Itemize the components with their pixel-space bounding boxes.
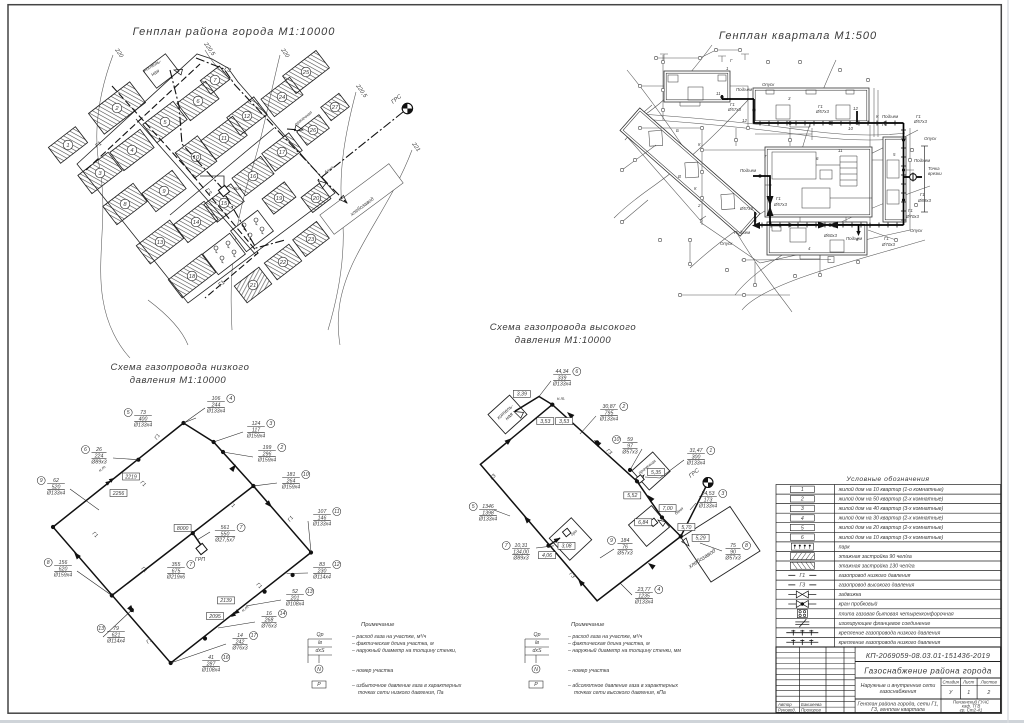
svg-text:795: 795 xyxy=(605,410,614,416)
svg-text:73: 73 xyxy=(140,410,146,416)
svg-text:К: К xyxy=(694,186,697,191)
svg-text:Ø57х3: Ø57х3 xyxy=(815,109,829,114)
svg-text:Ø108х4: Ø108х4 xyxy=(285,602,304,608)
svg-text:Стадия: Стадия xyxy=(942,680,959,685)
svg-text:20: 20 xyxy=(312,196,320,202)
svg-text:Г1: Г1 xyxy=(882,122,887,127)
svg-text:КП-2069059-08.03.01-151436-201: КП-2069059-08.03.01-151436-2019 xyxy=(866,651,990,660)
svg-text:Автор: Автор xyxy=(777,702,792,707)
svg-text:1: 1 xyxy=(967,690,970,696)
svg-text:Г1: Г1 xyxy=(884,236,889,241)
svg-text:Ø219х6: Ø219х6 xyxy=(166,575,185,581)
svg-text:17: 17 xyxy=(279,150,286,156)
svg-text:13: 13 xyxy=(157,240,164,246)
svg-text:14: 14 xyxy=(193,220,199,226)
svg-text:Ø57х3: Ø57х3 xyxy=(739,206,753,211)
svg-text:7,00: 7,00 xyxy=(663,506,673,512)
svg-text:Ø60х3: Ø60х3 xyxy=(823,233,837,238)
svg-text:н.т.: н.т. xyxy=(557,396,565,401)
svg-text:2139: 2139 xyxy=(219,598,232,604)
svg-text:К: К xyxy=(698,142,701,147)
svg-text:Ø57х3: Ø57х3 xyxy=(616,551,632,557)
svg-text:– расход газа на участке, м³/: – расход газа на участке, м³/ч xyxy=(567,634,642,640)
svg-text:201: 201 xyxy=(290,595,300,601)
svg-text:62: 62 xyxy=(53,478,59,484)
svg-text:4,06: 4,06 xyxy=(542,553,552,559)
svg-text:561: 561 xyxy=(221,525,230,531)
svg-text:плита газовая бытовая четырехк: плита газовая бытовая четырехконфорочная xyxy=(839,611,954,617)
svg-text:14: 14 xyxy=(237,633,243,639)
svg-text:11: 11 xyxy=(221,136,227,142)
svg-text:Г3, генплан квартала: Г3, генплан квартала xyxy=(871,707,925,713)
svg-text:23,77: 23,77 xyxy=(637,587,652,593)
svg-text:2: 2 xyxy=(986,690,990,696)
svg-text:Г1: Г1 xyxy=(799,573,805,579)
svg-text:621: 621 xyxy=(112,632,121,638)
svg-text:520: 520 xyxy=(52,484,61,490)
svg-text:90: 90 xyxy=(730,549,736,555)
svg-text:355: 355 xyxy=(172,562,181,568)
svg-text:8: 8 xyxy=(47,560,50,566)
svg-text:Ø57х3: Ø57х3 xyxy=(727,107,741,112)
svg-text:Ø70х3: Ø70х3 xyxy=(881,242,895,247)
svg-text:ГРП: ГРП xyxy=(195,557,205,563)
svg-text:Генплан района города М1:10: Генплан района города М1:10000 xyxy=(133,26,336,38)
svg-text:давления М1:10000: давления М1:10000 xyxy=(130,375,227,386)
svg-text:– номер участка: – номер участка xyxy=(567,668,609,674)
svg-text:400: 400 xyxy=(139,416,148,422)
svg-text:В: В xyxy=(678,174,681,179)
svg-text:3,39: 3,39 xyxy=(517,392,527,398)
svg-text:Опуск: Опуск xyxy=(910,228,923,233)
svg-text:– избыточное давление газа в: – избыточное давление газа в характерных xyxy=(351,683,462,689)
svg-text:2: 2 xyxy=(621,404,625,410)
svg-text:6: 6 xyxy=(84,447,87,453)
svg-text:Ø76х3: Ø76х3 xyxy=(231,646,247,652)
svg-text:10: 10 xyxy=(848,126,853,131)
svg-text:К: К xyxy=(876,114,879,119)
svg-text:4: 4 xyxy=(130,148,133,154)
svg-text:Ø133х4: Ø133х4 xyxy=(552,382,571,388)
svg-text:5,52: 5,52 xyxy=(627,493,637,499)
svg-text:Р: Р xyxy=(317,682,321,688)
svg-text:– расход газа на участке, м³/: – расход газа на участке, м³/ч xyxy=(351,634,426,640)
svg-text:12: 12 xyxy=(334,562,340,568)
svg-text:181: 181 xyxy=(287,472,296,478)
svg-text:5,35: 5,35 xyxy=(651,470,661,476)
svg-text:9: 9 xyxy=(610,538,613,544)
svg-text:19: 19 xyxy=(276,196,283,202)
svg-text:газопровод низкого давления: газопровод низкого давления xyxy=(839,573,911,579)
svg-text:12: 12 xyxy=(244,114,251,120)
svg-text:– наружный диаметр на толщину: – наружный диаметр на толщину стенки, мм xyxy=(567,647,681,654)
svg-text:жилой дом на 50 квартир (2-х к: жилой дом на 50 квартир (2-х комнатные) xyxy=(838,496,944,503)
svg-text:83: 83 xyxy=(319,562,325,568)
svg-text:59: 59 xyxy=(627,437,633,443)
svg-text:12: 12 xyxy=(742,118,747,123)
svg-text:Ø159х4: Ø159х4 xyxy=(281,485,300,491)
svg-text:12: 12 xyxy=(853,106,858,111)
svg-text:14: 14 xyxy=(280,611,286,617)
svg-text:9: 9 xyxy=(40,478,43,484)
svg-text:244: 244 xyxy=(211,402,221,408)
svg-text:Г1: Г1 xyxy=(920,192,925,197)
svg-text:врезки: врезки xyxy=(928,171,942,176)
svg-text:Газоснабжение района города: Газоснабжение района города xyxy=(864,667,992,676)
svg-text:Ø70х3: Ø70х3 xyxy=(905,214,919,219)
svg-text:550: 550 xyxy=(221,531,230,537)
svg-text:Ø133х4: Ø133х4 xyxy=(599,417,618,423)
svg-text:парк: парк xyxy=(839,544,851,550)
svg-text:24,53: 24,53 xyxy=(701,491,715,497)
svg-text:Подъем: Подъем xyxy=(882,114,898,119)
svg-text:давления М1:10000: давления М1:10000 xyxy=(515,335,612,346)
svg-text:2: 2 xyxy=(697,203,701,208)
svg-text:230: 230 xyxy=(317,568,327,574)
svg-text:16: 16 xyxy=(250,174,257,180)
svg-text:Р: Р xyxy=(534,682,538,688)
svg-text:крепление газопровода низкого: крепление газопровода низкого давления xyxy=(839,640,941,646)
svg-text:2: 2 xyxy=(800,497,804,503)
svg-text:Ø133х4: Ø133х4 xyxy=(478,517,497,523)
svg-text:Примечание: Примечание xyxy=(361,622,395,628)
svg-text:lв: lв xyxy=(535,640,539,646)
svg-text:Qр: Qр xyxy=(317,632,324,638)
svg-text:5: 5 xyxy=(801,525,804,531)
svg-text:Листов: Листов xyxy=(980,680,998,685)
svg-text:2219: 2219 xyxy=(124,474,137,480)
svg-text:23: 23 xyxy=(307,237,315,243)
svg-text:Ø133х4: Ø133х4 xyxy=(312,522,331,528)
svg-text:24: 24 xyxy=(278,95,285,101)
svg-text:52: 52 xyxy=(292,589,298,595)
svg-text:газоснабжения: газоснабжения xyxy=(880,689,917,695)
svg-text:1: 1 xyxy=(66,143,69,149)
svg-text:264: 264 xyxy=(286,478,296,484)
svg-text:жилой дом на 20 квартир (2-х к: жилой дом на 20 квартир (2-х комнатные) xyxy=(838,524,944,531)
svg-text:Схема газопровода высокого: Схема газопровода высокого xyxy=(490,322,637,333)
svg-text:3: 3 xyxy=(721,491,724,497)
svg-text:16: 16 xyxy=(266,611,272,617)
svg-text:жилой дом на 30 квартир (2-х к: жилой дом на 30 квартир (2-х комнатные) xyxy=(838,515,944,522)
svg-text:Ø27,5х7: Ø27,5х7 xyxy=(214,538,236,544)
svg-text:Г1: Г1 xyxy=(776,196,781,201)
svg-text:жилой дом на 10 квартир (1-о к: жилой дом на 10 квартир (1-о комнатные) xyxy=(838,486,944,493)
svg-text:Схема газопровода низкого: Схема газопровода низкого xyxy=(111,362,250,373)
svg-text:Подъем: Подъем xyxy=(914,158,930,163)
svg-text:4: 4 xyxy=(229,396,232,402)
svg-text:газопровод высокого давления: газопровод высокого давления xyxy=(839,583,915,589)
svg-text:106: 106 xyxy=(212,396,221,402)
svg-text:18: 18 xyxy=(189,274,196,280)
svg-text:2: 2 xyxy=(279,445,283,451)
svg-text:Ø57х3: Ø57х3 xyxy=(913,119,927,124)
svg-text:задвижка: задвижка xyxy=(838,592,862,598)
svg-text:Ø114х4: Ø114х4 xyxy=(106,639,125,645)
svg-text:75: 75 xyxy=(730,543,736,549)
svg-text:6: 6 xyxy=(801,535,804,541)
svg-text:6: 6 xyxy=(575,369,578,375)
svg-text:Ø89х3: Ø89х3 xyxy=(917,198,931,203)
svg-text:134,00: 134,00 xyxy=(513,549,529,555)
svg-text:1: 1 xyxy=(801,487,804,493)
svg-text:Лист: Лист xyxy=(962,680,975,685)
svg-text:жилой дом на 10 квартир (3-х к: жилой дом на 10 квартир (3-х комнатные) xyxy=(838,534,944,541)
svg-text:16: 16 xyxy=(223,655,229,661)
svg-text:изолирующее фланцевое соединен: изолирующее фланцевое соединение xyxy=(839,621,931,627)
svg-text:26: 26 xyxy=(309,128,317,134)
svg-text:этажная застройка 130 чел/га: этажная застройка 130 чел/га xyxy=(839,562,915,569)
svg-text:11: 11 xyxy=(334,509,339,515)
svg-text:Бакшеева: Бакшеева xyxy=(801,702,822,707)
svg-text:27: 27 xyxy=(331,105,339,111)
svg-text:Ø133х4: Ø133х4 xyxy=(686,461,705,467)
svg-text:3,08: 3,08 xyxy=(561,544,571,550)
svg-text:8: 8 xyxy=(745,543,748,549)
svg-text:гр. Ст2-41: гр. Ст2-41 xyxy=(960,708,983,713)
svg-text:3: 3 xyxy=(801,506,804,512)
svg-text:Опуск: Опуск xyxy=(762,82,775,87)
svg-text:– фактическая длина участка,: – фактическая длина участка, м xyxy=(567,641,650,647)
svg-text:146: 146 xyxy=(318,515,327,521)
svg-text:точках сети низкого давления,: точках сети низкого давления, Па xyxy=(358,690,444,696)
svg-text:Подъем: Подъем xyxy=(740,168,756,173)
svg-text:22: 22 xyxy=(279,260,287,266)
svg-text:Ø114х4: Ø114х4 xyxy=(312,575,331,581)
svg-text:6,84: 6,84 xyxy=(638,520,648,526)
svg-text:dхS: dхS xyxy=(316,648,325,654)
svg-text:Подъем: Подъем xyxy=(736,87,752,92)
svg-text:Ø89х3: Ø89х3 xyxy=(512,556,528,562)
svg-text:– номер участка: – номер участка xyxy=(351,668,393,674)
svg-text:Подъем: Подъем xyxy=(734,230,750,235)
svg-text:Ø57х3: Ø57х3 xyxy=(773,202,787,207)
svg-text:300: 300 xyxy=(692,454,701,460)
svg-text:10,31: 10,31 xyxy=(515,543,528,549)
svg-text:Ø133х4: Ø133х4 xyxy=(206,409,225,415)
svg-text:242: 242 xyxy=(235,639,245,645)
svg-text:173: 173 xyxy=(704,497,713,503)
svg-text:44,34: 44,34 xyxy=(556,369,569,375)
svg-text:4: 4 xyxy=(657,587,660,593)
svg-text:10: 10 xyxy=(614,437,620,443)
svg-text:620: 620 xyxy=(59,566,68,572)
svg-text:2095: 2095 xyxy=(208,614,221,620)
svg-text:крепление газопровода низкого: крепление газопровода низкого давления xyxy=(839,630,941,636)
svg-text:Подъем: Подъем xyxy=(846,236,862,241)
svg-text:Ø133х4: Ø133х4 xyxy=(133,423,152,429)
svg-text:156: 156 xyxy=(59,560,68,566)
svg-text:30,87: 30,87 xyxy=(603,404,617,410)
svg-text:76: 76 xyxy=(622,544,628,550)
svg-text:3,53: 3,53 xyxy=(540,419,550,425)
svg-text:N: N xyxy=(317,667,321,673)
svg-text:41: 41 xyxy=(208,655,214,661)
svg-text:31,47: 31,47 xyxy=(690,448,704,454)
svg-text:Руковод.: Руковод. xyxy=(778,708,796,713)
svg-text:– наружный диаметр на толщину: – наружный диаметр на толщину стенки, xyxy=(351,647,456,654)
svg-text:Qр: Qр xyxy=(534,632,541,638)
svg-text:10: 10 xyxy=(303,472,309,478)
svg-text:Г3: Г3 xyxy=(799,583,805,589)
svg-text:11: 11 xyxy=(838,148,843,153)
svg-text:dхS: dхS xyxy=(533,648,542,654)
svg-text:Ø76х3: Ø76х3 xyxy=(260,624,276,630)
svg-text:Ø159х4: Ø159х4 xyxy=(257,458,276,464)
svg-text:Ø89х3: Ø89х3 xyxy=(90,460,106,466)
svg-text:1346: 1346 xyxy=(482,504,494,510)
svg-text:1: 1 xyxy=(709,448,712,454)
svg-text:21: 21 xyxy=(249,283,256,289)
svg-text:Ø57х3: Ø57х3 xyxy=(724,556,740,562)
svg-text:5,70: 5,70 xyxy=(681,525,691,531)
svg-text:2256: 2256 xyxy=(112,491,125,497)
svg-text:11: 11 xyxy=(716,91,721,96)
svg-text:Б: Б xyxy=(676,128,679,133)
svg-text:Ø133х4: Ø133х4 xyxy=(698,504,717,510)
svg-text:грп: грп xyxy=(234,186,242,191)
svg-text:184: 184 xyxy=(621,538,630,544)
svg-text:точках сети высокого давления,: точках сети высокого давления, кПа xyxy=(574,690,666,696)
svg-text:Примечание: Примечание xyxy=(571,622,605,628)
svg-text:296: 296 xyxy=(262,451,272,457)
svg-text:199: 199 xyxy=(263,445,272,451)
svg-text:Г1: Г1 xyxy=(908,208,913,213)
svg-text:Ø159х4: Ø159х4 xyxy=(53,573,72,579)
svg-text:этажная застройка 90 чел/га: этажная застройка 90 чел/га xyxy=(839,553,912,560)
svg-text:– абсолютное давление газа в: – абсолютное давление газа в характерных xyxy=(567,683,678,689)
svg-text:Ø57х3: Ø57х3 xyxy=(621,450,637,456)
svg-text:3,53: 3,53 xyxy=(559,419,569,425)
svg-text:1235: 1235 xyxy=(638,593,650,599)
svg-text:5,29: 5,29 xyxy=(696,536,706,542)
svg-text:26: 26 xyxy=(95,447,102,453)
svg-text:кран пробковый: кран пробковый xyxy=(839,601,878,608)
svg-text:Ø159х4: Ø159х4 xyxy=(246,434,265,440)
svg-text:25: 25 xyxy=(302,70,310,76)
svg-text:lв: lв xyxy=(318,640,322,646)
svg-text:224: 224 xyxy=(94,453,104,459)
svg-text:4: 4 xyxy=(801,516,804,522)
svg-text:N: N xyxy=(534,667,538,673)
svg-text:Ø133х4: Ø133х4 xyxy=(634,600,653,606)
svg-text:287: 287 xyxy=(206,661,217,667)
svg-text:Опуск: Опуск xyxy=(720,241,733,246)
svg-text:– фактическая длина участка,: – фактическая длина участка, м xyxy=(351,641,434,647)
svg-text:3: 3 xyxy=(269,421,272,427)
svg-text:8000: 8000 xyxy=(177,526,189,532)
svg-text:117: 117 xyxy=(252,427,261,433)
svg-text:Ø133х4: Ø133х4 xyxy=(46,491,65,497)
svg-text:107: 107 xyxy=(318,509,328,515)
svg-text:13: 13 xyxy=(307,589,313,595)
svg-text:339: 339 xyxy=(558,375,567,381)
svg-text:124: 124 xyxy=(252,421,261,427)
svg-text:15: 15 xyxy=(221,201,228,207)
svg-text:5: 5 xyxy=(127,410,130,416)
svg-text:Генплан квартала М1:500: Генплан квартала М1:500 xyxy=(719,30,877,42)
svg-text:жилой дом на 40 квартир (3-х к: жилой дом на 40 квартир (3-х комнатные) xyxy=(838,505,944,512)
svg-text:1398: 1398 xyxy=(482,510,494,516)
svg-text:Опуск: Опуск xyxy=(924,136,937,141)
svg-text:Ø108х4: Ø108х4 xyxy=(201,668,220,674)
svg-text:13: 13 xyxy=(98,626,104,632)
svg-text:5: 5 xyxy=(472,504,475,510)
svg-text:Условные обозначения: Условные обозначения xyxy=(845,475,929,483)
svg-text:Прохоров: Прохоров xyxy=(801,708,821,713)
svg-text:675: 675 xyxy=(172,568,181,574)
svg-text:268: 268 xyxy=(264,617,274,623)
